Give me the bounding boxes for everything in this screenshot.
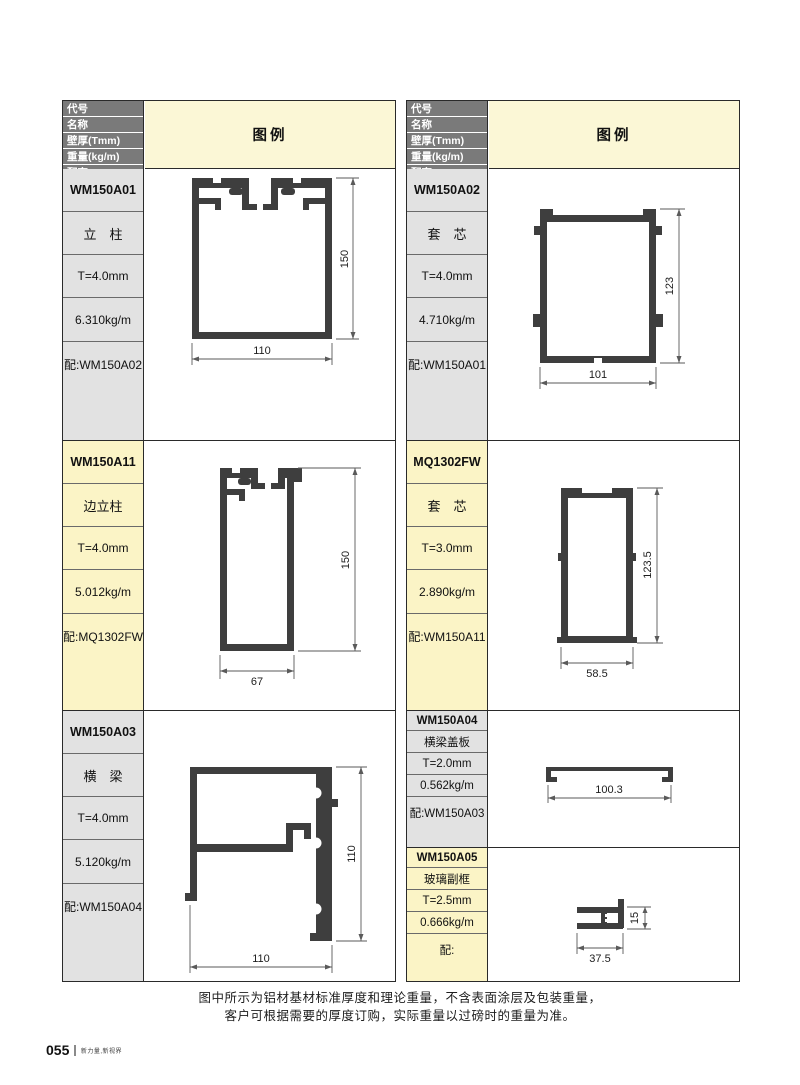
profile-drawing-wm150a05: 15 37.5 (489, 848, 739, 981)
match-cell: 配:WM150A01 (407, 342, 487, 440)
dim-height-label: 123.5 (642, 551, 654, 579)
dim-height-label: 123 (664, 277, 676, 295)
match-cell: 配:WM150A03 (407, 797, 487, 847)
profile-drawing-wm150a11: 67 150 (145, 441, 395, 710)
profile-row-mq1302fw: MQ1302FW 套 芯 T=3.0mm 2.890kg/m 配:WM150A1… (407, 441, 739, 711)
profile-drawing-wm150a01: 110 150 (145, 169, 395, 440)
weight-cell: 6.310kg/m (63, 298, 143, 342)
dim-width-label: 58.5 (586, 668, 607, 680)
dim-width-label: 67 (251, 676, 263, 688)
header-label-thickness: 壁厚(Tmm) (63, 133, 143, 148)
header-label-weight: 重量(kg/m) (63, 149, 143, 164)
profile-drawing-wm150a04: 100.3 (489, 711, 739, 847)
weight-cell: 2.890kg/m (407, 570, 487, 614)
header-label-column: 代号 名称 壁厚(Tmm) 重量(kg/m) 配套 (407, 101, 488, 169)
dim-width-label: 37.5 (589, 953, 610, 965)
dim-height-label: 150 (339, 250, 351, 268)
catalog-page: 代号 名称 壁厚(Tmm) 重量(kg/m) 配套 图例 WM150A01 立 … (0, 0, 800, 1085)
header-label-thickness: 壁厚(Tmm) (407, 133, 487, 148)
header-label-code: 代号 (63, 101, 143, 116)
weight-cell: 0.666kg/m (407, 912, 487, 934)
dim-width-label: 110 (252, 953, 270, 965)
page-footer: 055 新力量,新视界 (46, 1042, 122, 1058)
profile-name: 套 芯 (407, 484, 487, 527)
profile-code: WM150A11 (63, 441, 143, 484)
profile-row-wm150a04: WM150A04 横梁盖板 T=2.0mm 0.562kg/m 配:WM150A… (407, 711, 739, 848)
profile-name: 横 梁 (63, 754, 143, 797)
profile-name: 立 柱 (63, 212, 143, 255)
thickness-cell: T=4.0mm (63, 527, 143, 570)
dim-height-label: 15 (629, 912, 641, 924)
header-label-code: 代号 (407, 101, 487, 116)
dim-width-label: 100.3 (595, 784, 623, 796)
profile-code: WM150A04 (407, 711, 487, 731)
footer-note-line2: 客户可根据需要的厚度订购，实际重量以过磅时的重量为准。 (0, 1007, 800, 1025)
profile-code: WM150A03 (63, 711, 143, 754)
legend-header-cell: 图例 (489, 101, 739, 169)
profile-code: MQ1302FW (407, 441, 487, 484)
thickness-cell: T=4.0mm (63, 255, 143, 298)
header-label-column: 代号 名称 壁厚(Tmm) 重量(kg/m) 配套 (63, 101, 144, 169)
header-label-name: 名称 (407, 117, 487, 132)
profile-name: 套 芯 (407, 212, 487, 255)
legend-header-cell: 图例 (145, 101, 395, 169)
profile-row-wm150a05: WM150A05 玻璃副框 T=2.5mm 0.666kg/m 配: (407, 848, 739, 981)
profile-drawing-wm150a03: 110 110 (145, 711, 395, 981)
match-cell: 配:WM150A11 (407, 614, 487, 710)
profile-code: WM150A02 (407, 169, 487, 212)
profile-row-wm150a01: WM150A01 立 柱 T=4.0mm 6.310kg/m 配:WM150A0… (63, 169, 395, 441)
header-label-name: 名称 (63, 117, 143, 132)
match-cell: 配: (407, 934, 487, 981)
thickness-cell: T=4.0mm (63, 797, 143, 840)
match-cell: 配:WM150A04 (63, 884, 143, 981)
thickness-cell: T=2.5mm (407, 890, 487, 912)
header-label-weight: 重量(kg/m) (407, 149, 487, 164)
footer-note: 图中所示为铝材基材标准厚度和理论重量，不含表面涂层及包装重量， 客户可根据需要的… (0, 989, 800, 1025)
profile-row-wm150a02: WM150A02 套 芯 T=4.0mm 4.710kg/m 配:WM150A0… (407, 169, 739, 441)
profile-table-left: 代号 名称 壁厚(Tmm) 重量(kg/m) 配套 图例 WM150A01 立 … (62, 100, 396, 982)
profile-code: WM150A01 (63, 169, 143, 212)
footer-slogan: 新力量,新视界 (81, 1046, 122, 1055)
profile-name: 边立柱 (63, 484, 143, 527)
profile-table-right: 代号 名称 壁厚(Tmm) 重量(kg/m) 配套 图例 WM150A02 套 … (406, 100, 740, 982)
match-cell: 配:WM150A02 (63, 342, 143, 440)
dim-height-label: 150 (340, 551, 352, 569)
weight-cell: 5.012kg/m (63, 570, 143, 614)
profile-row-wm150a11: WM150A11 边立柱 T=4.0mm 5.012kg/m 配:MQ1302F… (63, 441, 395, 711)
weight-cell: 5.120kg/m (63, 840, 143, 884)
footer-note-line1: 图中所示为铝材基材标准厚度和理论重量，不含表面涂层及包装重量， (0, 989, 800, 1007)
thickness-cell: T=2.0mm (407, 753, 487, 775)
profile-row-wm150a03: WM150A03 横 梁 T=4.0mm 5.120kg/m 配:WM150A0… (63, 711, 395, 981)
thickness-cell: T=4.0mm (407, 255, 487, 298)
profile-code: WM150A05 (407, 848, 487, 868)
page-number: 055 (46, 1042, 69, 1058)
dim-height-label: 110 (346, 845, 358, 863)
thickness-cell: T=3.0mm (407, 527, 487, 570)
dim-width-label: 101 (589, 369, 607, 381)
profile-drawing-mq1302fw: 58.5 123.5 (489, 441, 739, 710)
dim-width-label: 110 (253, 345, 271, 357)
match-cell: 配:MQ1302FW (63, 614, 143, 710)
weight-cell: 0.562kg/m (407, 775, 487, 797)
footer-divider (74, 1045, 76, 1056)
weight-cell: 4.710kg/m (407, 298, 487, 342)
profile-name: 玻璃副框 (407, 868, 487, 890)
profile-name: 横梁盖板 (407, 731, 487, 753)
profile-drawing-wm150a02: 101 123 (489, 169, 739, 440)
